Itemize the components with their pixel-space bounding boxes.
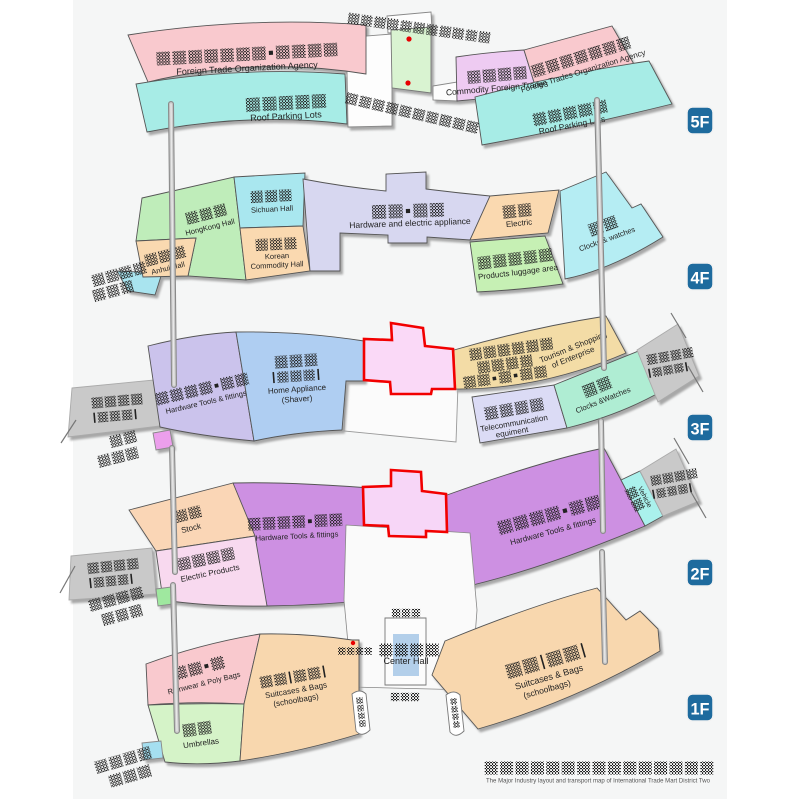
svg-text:4F: 4F [691,269,710,288]
svg-text:Center Hall: Center Hall [383,656,428,666]
svg-text:The Major Industry layout and: The Major Industry layout and transport … [486,778,710,785]
svg-text:2F: 2F [691,565,710,584]
svg-text:3F: 3F [691,420,710,439]
svg-text:1F: 1F [691,700,710,719]
svg-text:5F: 5F [691,113,710,132]
